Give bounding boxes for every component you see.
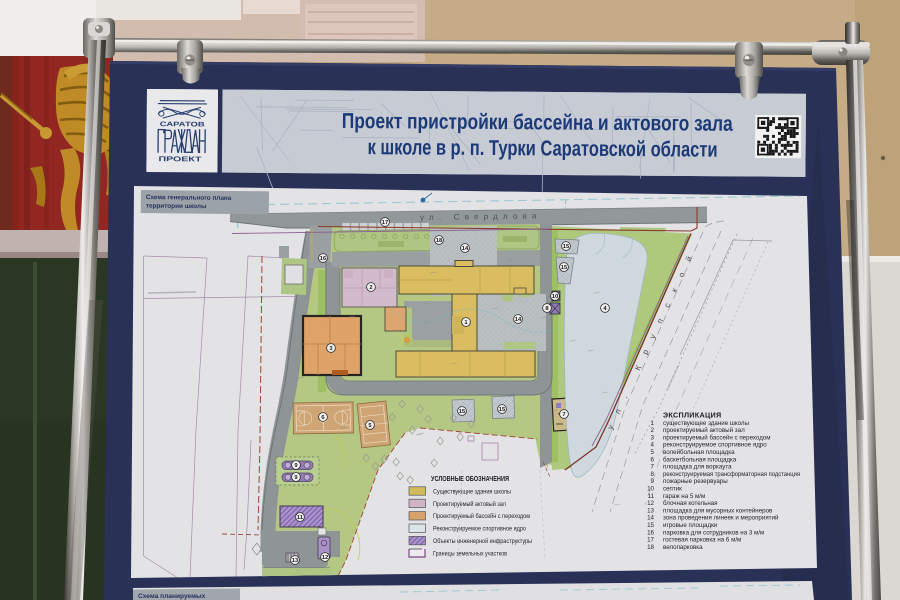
- svg-text:3: 3: [651, 434, 655, 441]
- svg-text:велопарковка: велопарковка: [663, 544, 703, 551]
- svg-text:16: 16: [647, 529, 654, 536]
- svg-text:7: 7: [651, 464, 655, 471]
- svg-text:7: 7: [562, 412, 565, 418]
- svg-text:18: 18: [647, 544, 654, 551]
- svg-text:Существующие здания школы: Существующие здания школы: [433, 488, 511, 495]
- svg-text:2: 2: [651, 427, 655, 434]
- svg-text:проектируемый актовый зал: проектируемый актовый зал: [663, 427, 745, 434]
- svg-text:Проектируемый бассейн с перехо: Проектируемый бассейн с переходом: [433, 512, 530, 520]
- svg-text:14: 14: [462, 246, 469, 252]
- svg-text:гараж на 5 м/м: гараж на 5 м/м: [663, 493, 705, 500]
- svg-text:реконструируемая трансформатор: реконструируемая трансформаторная подста…: [663, 471, 800, 478]
- svg-text:15: 15: [561, 265, 568, 271]
- svg-text:парковка для сотрудников на 3: парковка для сотрудников на 3 м/м: [663, 529, 764, 536]
- svg-text:ЭКСПЛИКАЦИЯ: ЭКСПЛИКАЦИЯ: [663, 411, 721, 420]
- svg-text:Проектируемый актовый зал: Проектируемый актовый зал: [433, 500, 506, 508]
- svg-text:Границы земельных участков: Границы земельных участков: [433, 550, 507, 557]
- svg-text:САРАТОВ: САРАТОВ: [160, 121, 205, 128]
- svg-text:существующее здание школы: существующее здание школы: [663, 420, 750, 427]
- svg-text:15: 15: [647, 522, 654, 529]
- svg-text:5: 5: [651, 449, 655, 456]
- svg-text:Объекты инженерной инфраструкт: Объекты инженерной инфраструктуры: [433, 537, 532, 545]
- svg-text:2: 2: [369, 285, 372, 291]
- svg-text:14: 14: [515, 317, 522, 323]
- svg-text:15: 15: [499, 407, 506, 413]
- svg-text:Реконструируемое спортивное яд: Реконструируемое спортивное ядро: [433, 526, 526, 533]
- svg-text:септик: септик: [663, 486, 682, 493]
- svg-text:11: 11: [297, 515, 304, 521]
- svg-text:пожарные резервуары: пожарные резервуары: [663, 478, 728, 485]
- svg-text:9: 9: [651, 478, 655, 485]
- svg-text:8: 8: [651, 471, 655, 478]
- svg-text:зона проведения линеек и мероп: зона проведения линеек и мероприятий: [663, 515, 779, 522]
- svg-text:Схема генерального плана: Схема генерального плана: [146, 194, 232, 202]
- svg-text:12: 12: [647, 500, 654, 507]
- svg-text:Проект пристройки бассейна и а: Проект пристройки бассейна и актового за…: [342, 109, 734, 136]
- svg-text:Схема планируемых: Схема планируемых: [138, 593, 206, 600]
- svg-text:15: 15: [459, 409, 466, 415]
- svg-text:18: 18: [436, 238, 443, 244]
- svg-text:территории школы: территории школы: [146, 203, 207, 211]
- svg-text:16: 16: [320, 256, 327, 262]
- svg-text:15: 15: [563, 244, 570, 250]
- svg-text:1: 1: [651, 420, 655, 427]
- svg-text:ПРОЕКТ: ПРОЕКТ: [158, 156, 202, 163]
- svg-text:13: 13: [647, 507, 654, 514]
- svg-text:волейбольная площадка: волейбольная площадка: [663, 449, 735, 456]
- svg-text:13: 13: [292, 558, 299, 564]
- svg-text:ул. Свердлова: ул. Свердлова: [420, 211, 542, 222]
- svg-text:10: 10: [647, 486, 654, 493]
- svg-text:баскетбольная площадка: баскетбольная площадка: [663, 456, 737, 463]
- svg-text:10: 10: [552, 294, 558, 300]
- svg-text:реконструируемое спортивное яд: реконструируемое спортивное ядро: [663, 442, 767, 449]
- svg-text:17: 17: [647, 537, 654, 544]
- svg-text:проектируемый бассейн с перехо: проектируемый бассейн с переходом: [663, 434, 771, 441]
- svg-text:блочная котельная: блочная котельная: [663, 500, 718, 507]
- svg-text:12: 12: [322, 555, 328, 561]
- svg-text:площадка для воркаута: площадка для воркаута: [663, 464, 732, 471]
- svg-text:площадка для мусорных контейне: площадка для мусорных контейнеров: [663, 507, 773, 514]
- svg-text:17: 17: [382, 220, 388, 226]
- svg-text:УСЛОВНЫЕ ОБОЗНАЧЕНИЯ: УСЛОВНЫЕ ОБОЗНАЧЕНИЯ: [431, 474, 509, 483]
- svg-text:6: 6: [651, 456, 655, 463]
- svg-text:4: 4: [651, 442, 655, 449]
- svg-text:к школе в р. п. Турки Саратовс: к школе в р. п. Турки Саратовской област…: [367, 135, 717, 162]
- svg-text:14: 14: [647, 515, 654, 522]
- svg-text:11: 11: [648, 493, 655, 500]
- svg-text:игровые площадки: игровые площадки: [663, 522, 718, 529]
- svg-text:гостевая парковка на 6 м/м: гостевая парковка на 6 м/м: [663, 537, 741, 544]
